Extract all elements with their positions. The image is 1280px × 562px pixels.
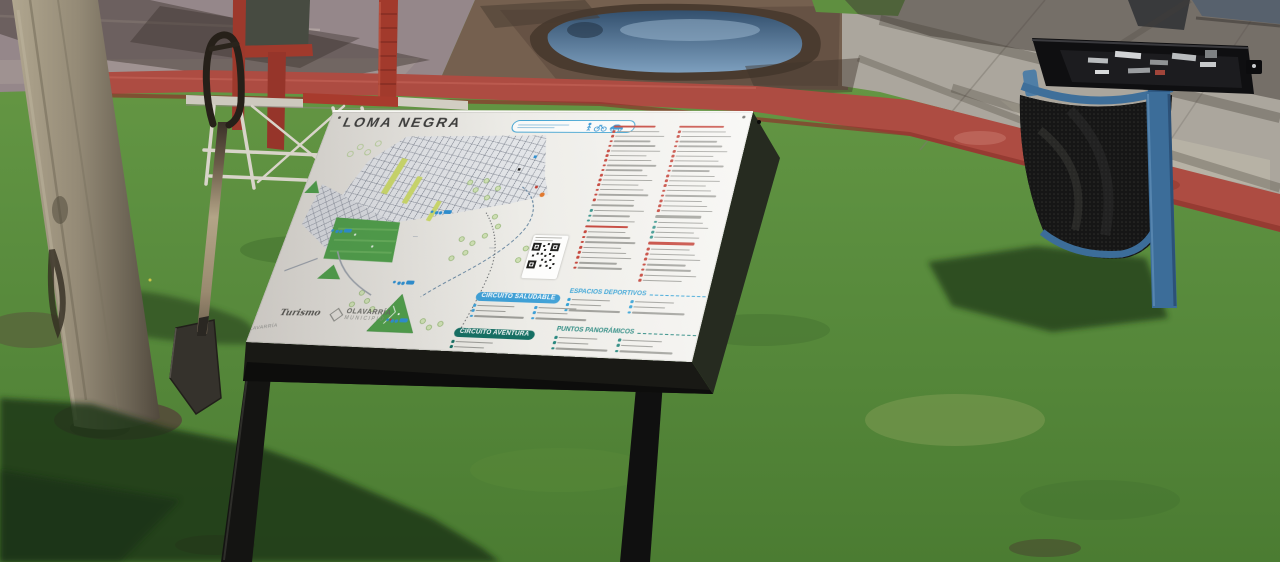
legend-item bbox=[609, 139, 669, 143]
legend-item bbox=[662, 189, 729, 194]
bike-icon bbox=[594, 125, 607, 131]
legend-item bbox=[604, 159, 665, 163]
circuit-item bbox=[564, 308, 621, 314]
legend-item bbox=[668, 164, 734, 168]
legend-item bbox=[595, 188, 656, 193]
legend-item bbox=[672, 149, 738, 153]
legend-heading bbox=[655, 215, 702, 218]
legend-item bbox=[594, 193, 655, 198]
section-puntos-panoramicos: PUNTOS PANORÁMICOS bbox=[550, 325, 697, 357]
legend-item bbox=[670, 159, 736, 163]
puntos-panoramicos-items bbox=[550, 335, 694, 357]
legend-item bbox=[601, 168, 662, 172]
legend-item bbox=[664, 179, 731, 184]
legend-item bbox=[638, 278, 707, 284]
circuit-aventura-pill: CIRCUITO AVENTURA bbox=[453, 328, 536, 341]
legend-item bbox=[611, 135, 671, 139]
legend-item bbox=[598, 178, 659, 183]
legend-item bbox=[675, 140, 741, 144]
circuit-item bbox=[469, 314, 524, 320]
circuit-saludable: CIRCUITO SALUDABLE bbox=[469, 284, 569, 323]
legend-item bbox=[671, 154, 737, 158]
legend-heading bbox=[679, 125, 725, 127]
municipio-diamond-icon bbox=[330, 307, 344, 321]
legend-item bbox=[608, 144, 669, 148]
legend-item bbox=[666, 174, 733, 179]
legend-item bbox=[656, 209, 723, 214]
legend-item bbox=[674, 144, 740, 148]
legend-item bbox=[602, 163, 663, 167]
municipio-logo: OLAVARRÍA MUNICIPIO bbox=[330, 308, 393, 323]
legend-heading bbox=[614, 125, 656, 127]
banner-text-illegible bbox=[517, 124, 580, 128]
sketch-trees bbox=[347, 141, 382, 157]
legend-item bbox=[676, 135, 742, 139]
legend-item bbox=[660, 194, 727, 199]
legend-item bbox=[597, 183, 658, 188]
street-name-dashes bbox=[376, 170, 518, 248]
circuit-item bbox=[551, 346, 609, 353]
legend-item bbox=[573, 266, 636, 272]
park-area bbox=[321, 217, 407, 262]
legend-item bbox=[592, 198, 653, 203]
circuit-saludable-pill: CIRCUITO SALUDABLE bbox=[475, 292, 562, 304]
poi-red bbox=[534, 186, 538, 189]
you-are-here-marker bbox=[517, 168, 520, 170]
sign-board: LOMA NEGRA bbox=[246, 112, 753, 362]
section-espacios-deportivos: ESPACIOS DEPORTIVOS bbox=[563, 288, 706, 319]
legend-heading bbox=[648, 242, 695, 245]
legend-item bbox=[599, 173, 660, 177]
circuit-item bbox=[615, 349, 674, 356]
legend-item bbox=[612, 130, 672, 134]
legend-item bbox=[586, 219, 648, 224]
turismo-logo: Turismo bbox=[279, 308, 322, 318]
legend-item bbox=[649, 235, 717, 240]
park-photo: LOMA NEGRA bbox=[0, 0, 1280, 562]
toolbox bbox=[1032, 38, 1262, 94]
legend-item bbox=[677, 130, 743, 134]
legend-heading bbox=[591, 204, 634, 207]
circuit-item bbox=[627, 310, 685, 316]
legend-item bbox=[606, 149, 667, 153]
pedestrian-icon bbox=[587, 122, 593, 130]
circuit-item bbox=[531, 316, 588, 322]
legend-item bbox=[605, 154, 666, 158]
poi-blue bbox=[533, 155, 537, 158]
boulevard-strips bbox=[371, 158, 456, 222]
screw-icon bbox=[338, 116, 342, 119]
legend-item bbox=[663, 184, 730, 189]
sign-title: LOMA NEGRA bbox=[340, 115, 465, 130]
legend-heading bbox=[585, 225, 628, 228]
poi-orange bbox=[539, 192, 545, 197]
screw-icon bbox=[742, 116, 746, 119]
legend-item bbox=[667, 169, 734, 174]
